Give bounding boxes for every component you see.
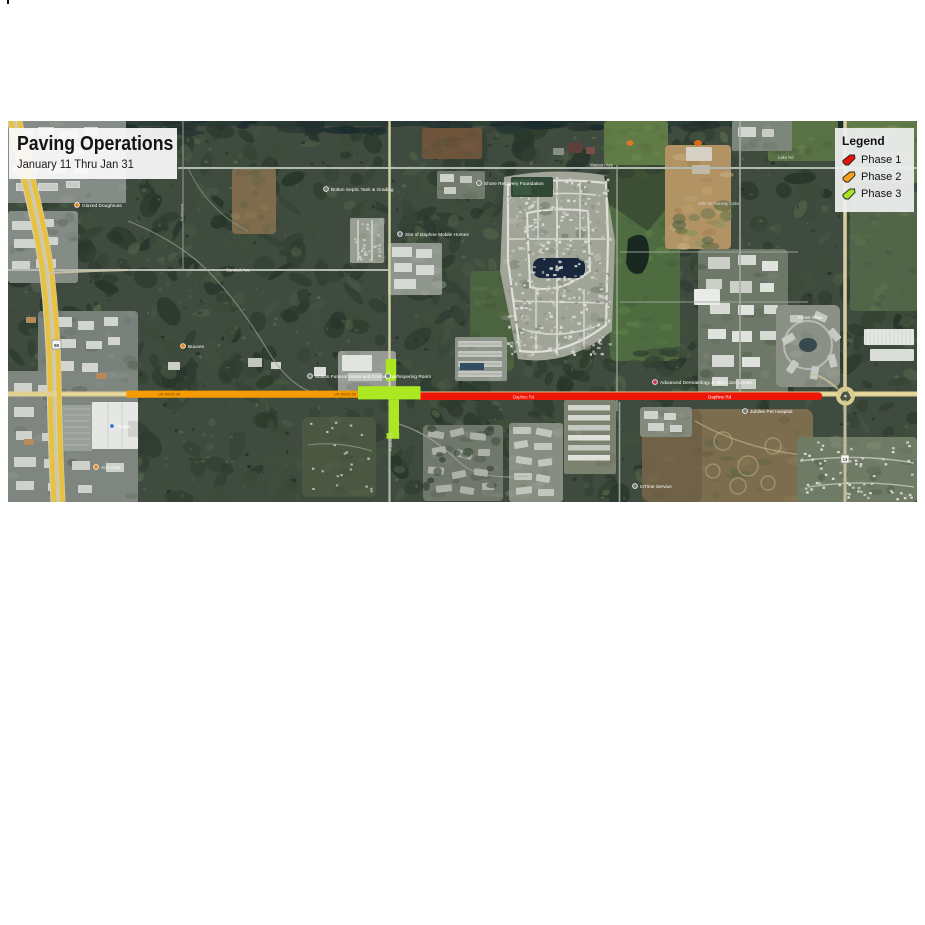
svg-text:13: 13 (843, 457, 848, 462)
svg-text:Wilson Funeral Home and Cremat: Wilson Funeral Home and Crematory (315, 374, 395, 380)
svg-text:Forest Villas: Forest Villas (798, 315, 823, 320)
svg-text:Hole 02 Fairway Oaks: Hole 02 Fairway Oaks (698, 201, 739, 206)
svg-text:InTime Service: InTime Service (640, 484, 672, 490)
svg-text:Bucees: Bucees (188, 344, 205, 350)
svg-text:Daphne Rd: Daphne Rd (708, 395, 732, 400)
svg-text:Bolton Septic Tank & Grading: Bolton Septic Tank & Grading (331, 187, 394, 193)
svg-text:Glazed Doughnuts: Glazed Doughnuts (82, 203, 122, 209)
svg-text:Pollard Rd: Pollard Rd (389, 433, 393, 451)
svg-text:Advanced Dermatology & Skin Ca: Advanced Dermatology & Skin Care Centre (660, 380, 753, 386)
svg-text:Lake Rd: Lake Rd (778, 155, 794, 160)
svg-text:98: 98 (54, 343, 60, 348)
svg-text:US 90/US 98: US 90/US 98 (334, 393, 356, 397)
svg-text:Jubilee Pet Hospital: Jubilee Pet Hospital (750, 409, 792, 415)
svg-text:Ace Area: Ace Area (101, 465, 121, 471)
svg-text:Daphne Rd: Daphne Rd (513, 394, 535, 399)
svg-text:Site of Daphne Mobile Homes: Site of Daphne Mobile Homes (405, 232, 469, 238)
svg-text:Target: Target (117, 424, 131, 430)
svg-text:Whispering Room: Whispering Room (393, 374, 431, 380)
svg-text:Rosewood: Rosewood (180, 204, 184, 221)
svg-text:Sandart Ave: Sandart Ave (226, 268, 250, 273)
svg-text:Watson Ave: Watson Ave (590, 163, 614, 168)
svg-text:Shore Recovery Foundation: Shore Recovery Foundation (484, 181, 544, 187)
svg-text:US 90/US 98: US 90/US 98 (158, 393, 180, 397)
